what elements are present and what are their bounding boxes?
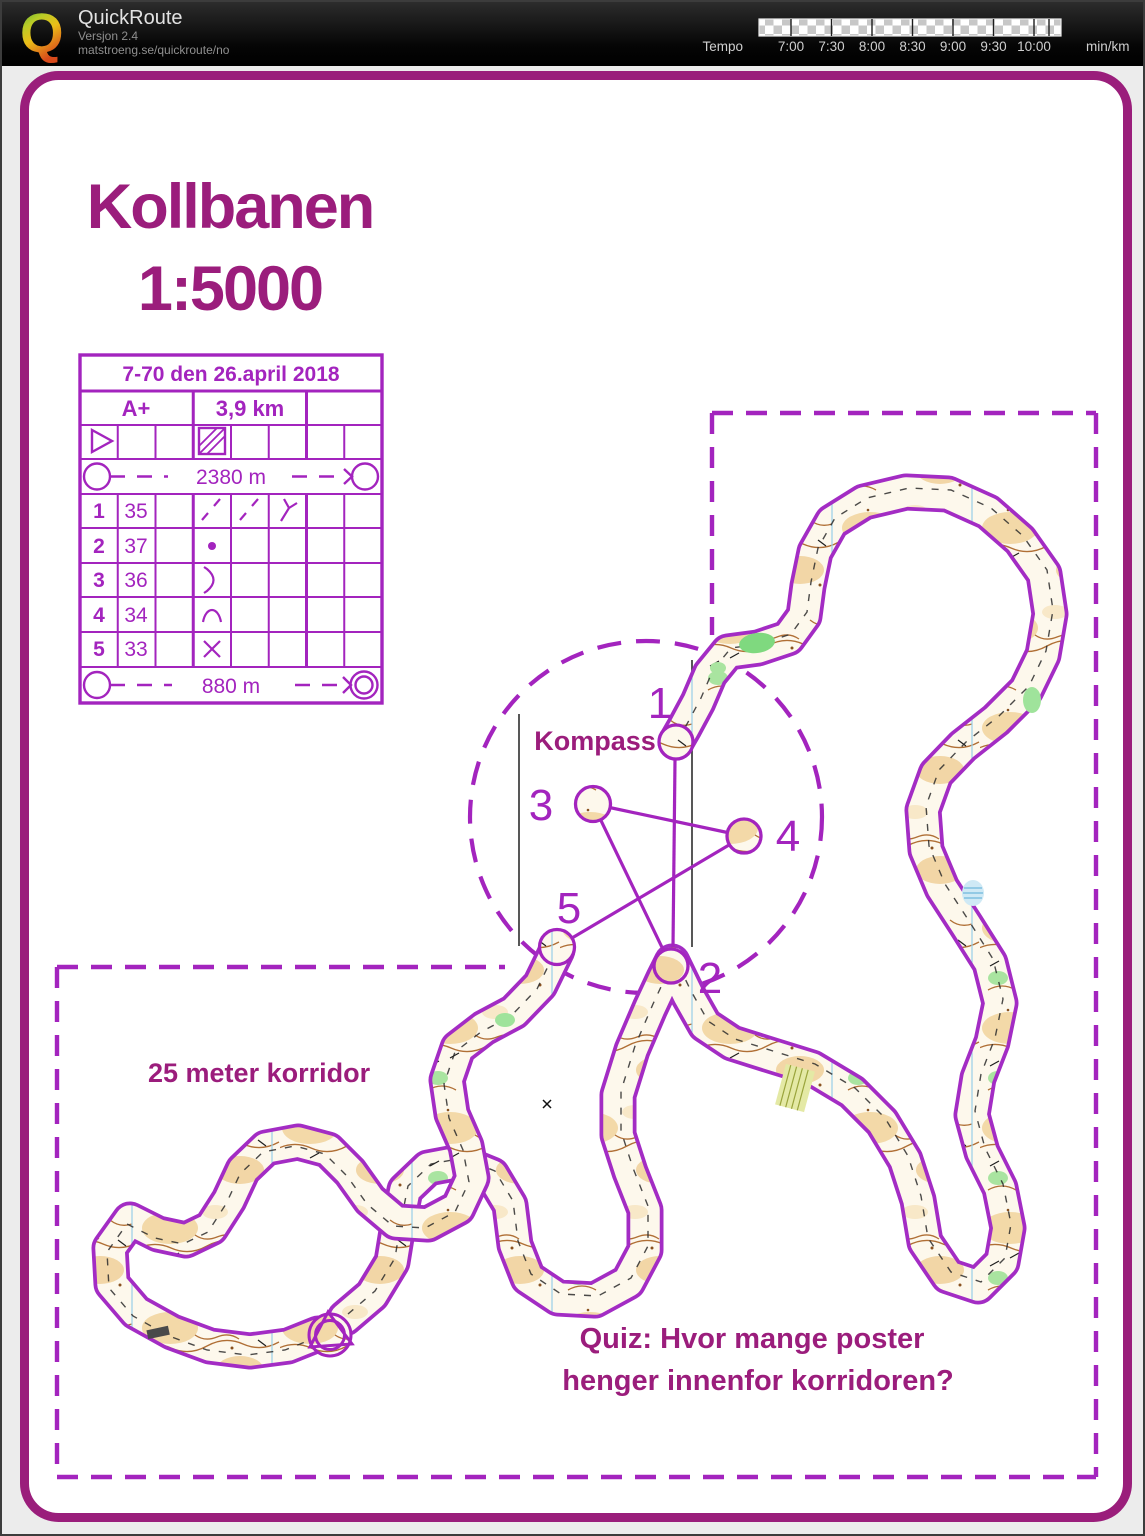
svg-text:8:00: 8:00	[859, 39, 885, 54]
tempo-unit: min/km	[1086, 39, 1130, 54]
sheet-row-code: 34	[124, 604, 148, 627]
app-version: Versjon 2.4	[78, 29, 229, 43]
sheet-row-no: 2	[93, 535, 105, 558]
control-number-4: 4	[776, 812, 800, 861]
quiz-line2: henger innenfor korridoren?	[562, 1365, 954, 1397]
control-circle-3	[576, 787, 611, 822]
control-circle-5	[540, 930, 575, 965]
tempo-gradient-bar[interactable]	[759, 19, 1061, 36]
sheet-row-no: 1	[93, 500, 105, 523]
control-number-5: 5	[557, 884, 581, 933]
control-number-2: 2	[698, 954, 722, 1003]
route2-length: 880 m	[202, 675, 260, 698]
kompass-label: Kompass	[534, 726, 656, 756]
header-bar: Q QuickRoute Versjon 2.4 matstroeng.se/q…	[0, 0, 1145, 66]
svg-text:8:30: 8:30	[899, 39, 925, 54]
q-gradient-icon: Q	[20, 4, 64, 64]
course-class: A+	[122, 396, 151, 421]
pond-icon	[962, 880, 984, 906]
map-canvas[interactable]: Kollbanen 1:5000	[0, 0, 1145, 1536]
control-number-1: 1	[648, 679, 672, 728]
control-circle-4	[727, 819, 761, 853]
quiz-line1: Quiz: Hvor mange poster	[580, 1323, 925, 1355]
course-length: 3,9 km	[216, 396, 285, 421]
map-title-line1: Kollbanen	[87, 172, 374, 242]
control-number-3: 3	[529, 781, 553, 830]
control-circle-2	[654, 949, 688, 983]
svg-text:9:30: 9:30	[980, 39, 1006, 54]
svg-text:9:00: 9:00	[940, 39, 966, 54]
dot-icon	[208, 542, 216, 550]
sheet-row-code: 35	[124, 500, 147, 523]
sheet-row-no: 4	[93, 604, 105, 627]
quickroute-logo: Q	[16, 4, 74, 64]
sheet-row-code: 33	[124, 638, 147, 661]
svg-text:7:00: 7:00	[778, 39, 804, 54]
tempo-label: Tempo	[702, 39, 743, 54]
sheet-title: 7-70 den 26.april 2018	[122, 363, 339, 386]
svg-text:10:00: 10:00	[1017, 39, 1051, 54]
app-url: matstroeng.se/quickroute/no	[78, 43, 229, 57]
sheet-row-code: 37	[124, 535, 147, 558]
sheet-row-code: 36	[124, 569, 147, 592]
corridor-label: 25 meter korridor	[148, 1058, 371, 1088]
svg-text:7:30: 7:30	[818, 39, 844, 54]
app-title: QuickRoute	[78, 7, 229, 29]
sheet-row-no: 3	[93, 569, 105, 592]
quickroute-window: { "header": { "app_title": "QuickRoute",…	[0, 0, 1145, 1536]
tempo-tick-labels: 7:00 7:30 8:00 8:30 9:00 9:30 10:00	[778, 39, 1051, 54]
tempo-scale[interactable]: Tempo 7:00 7:30 8:00 8:30 9:00 9:30 10:0…	[690, 0, 1145, 62]
control-circle-1	[659, 725, 693, 759]
route1-length: 2380 m	[196, 466, 266, 489]
map-scale: 1:5000	[138, 254, 322, 324]
sheet-row-no: 5	[93, 638, 105, 661]
